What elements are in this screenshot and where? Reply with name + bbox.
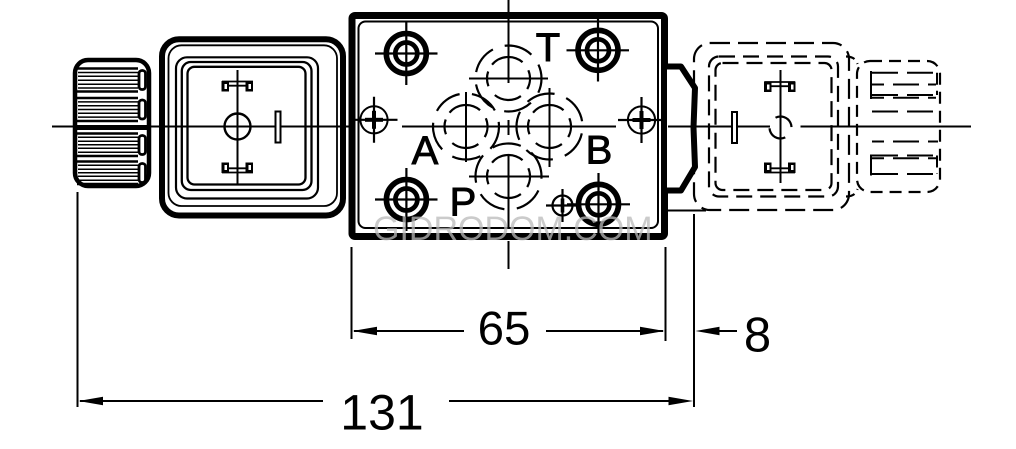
svg-text:A: A <box>412 129 439 173</box>
svg-text:131: 131 <box>340 385 423 441</box>
svg-text:T: T <box>536 26 560 70</box>
svg-text:B: B <box>586 129 613 173</box>
svg-text:8: 8 <box>744 309 771 363</box>
svg-text:65: 65 <box>478 303 531 356</box>
svg-text:GIDRODOM.COM: GIDRODOM.COM <box>373 210 653 248</box>
